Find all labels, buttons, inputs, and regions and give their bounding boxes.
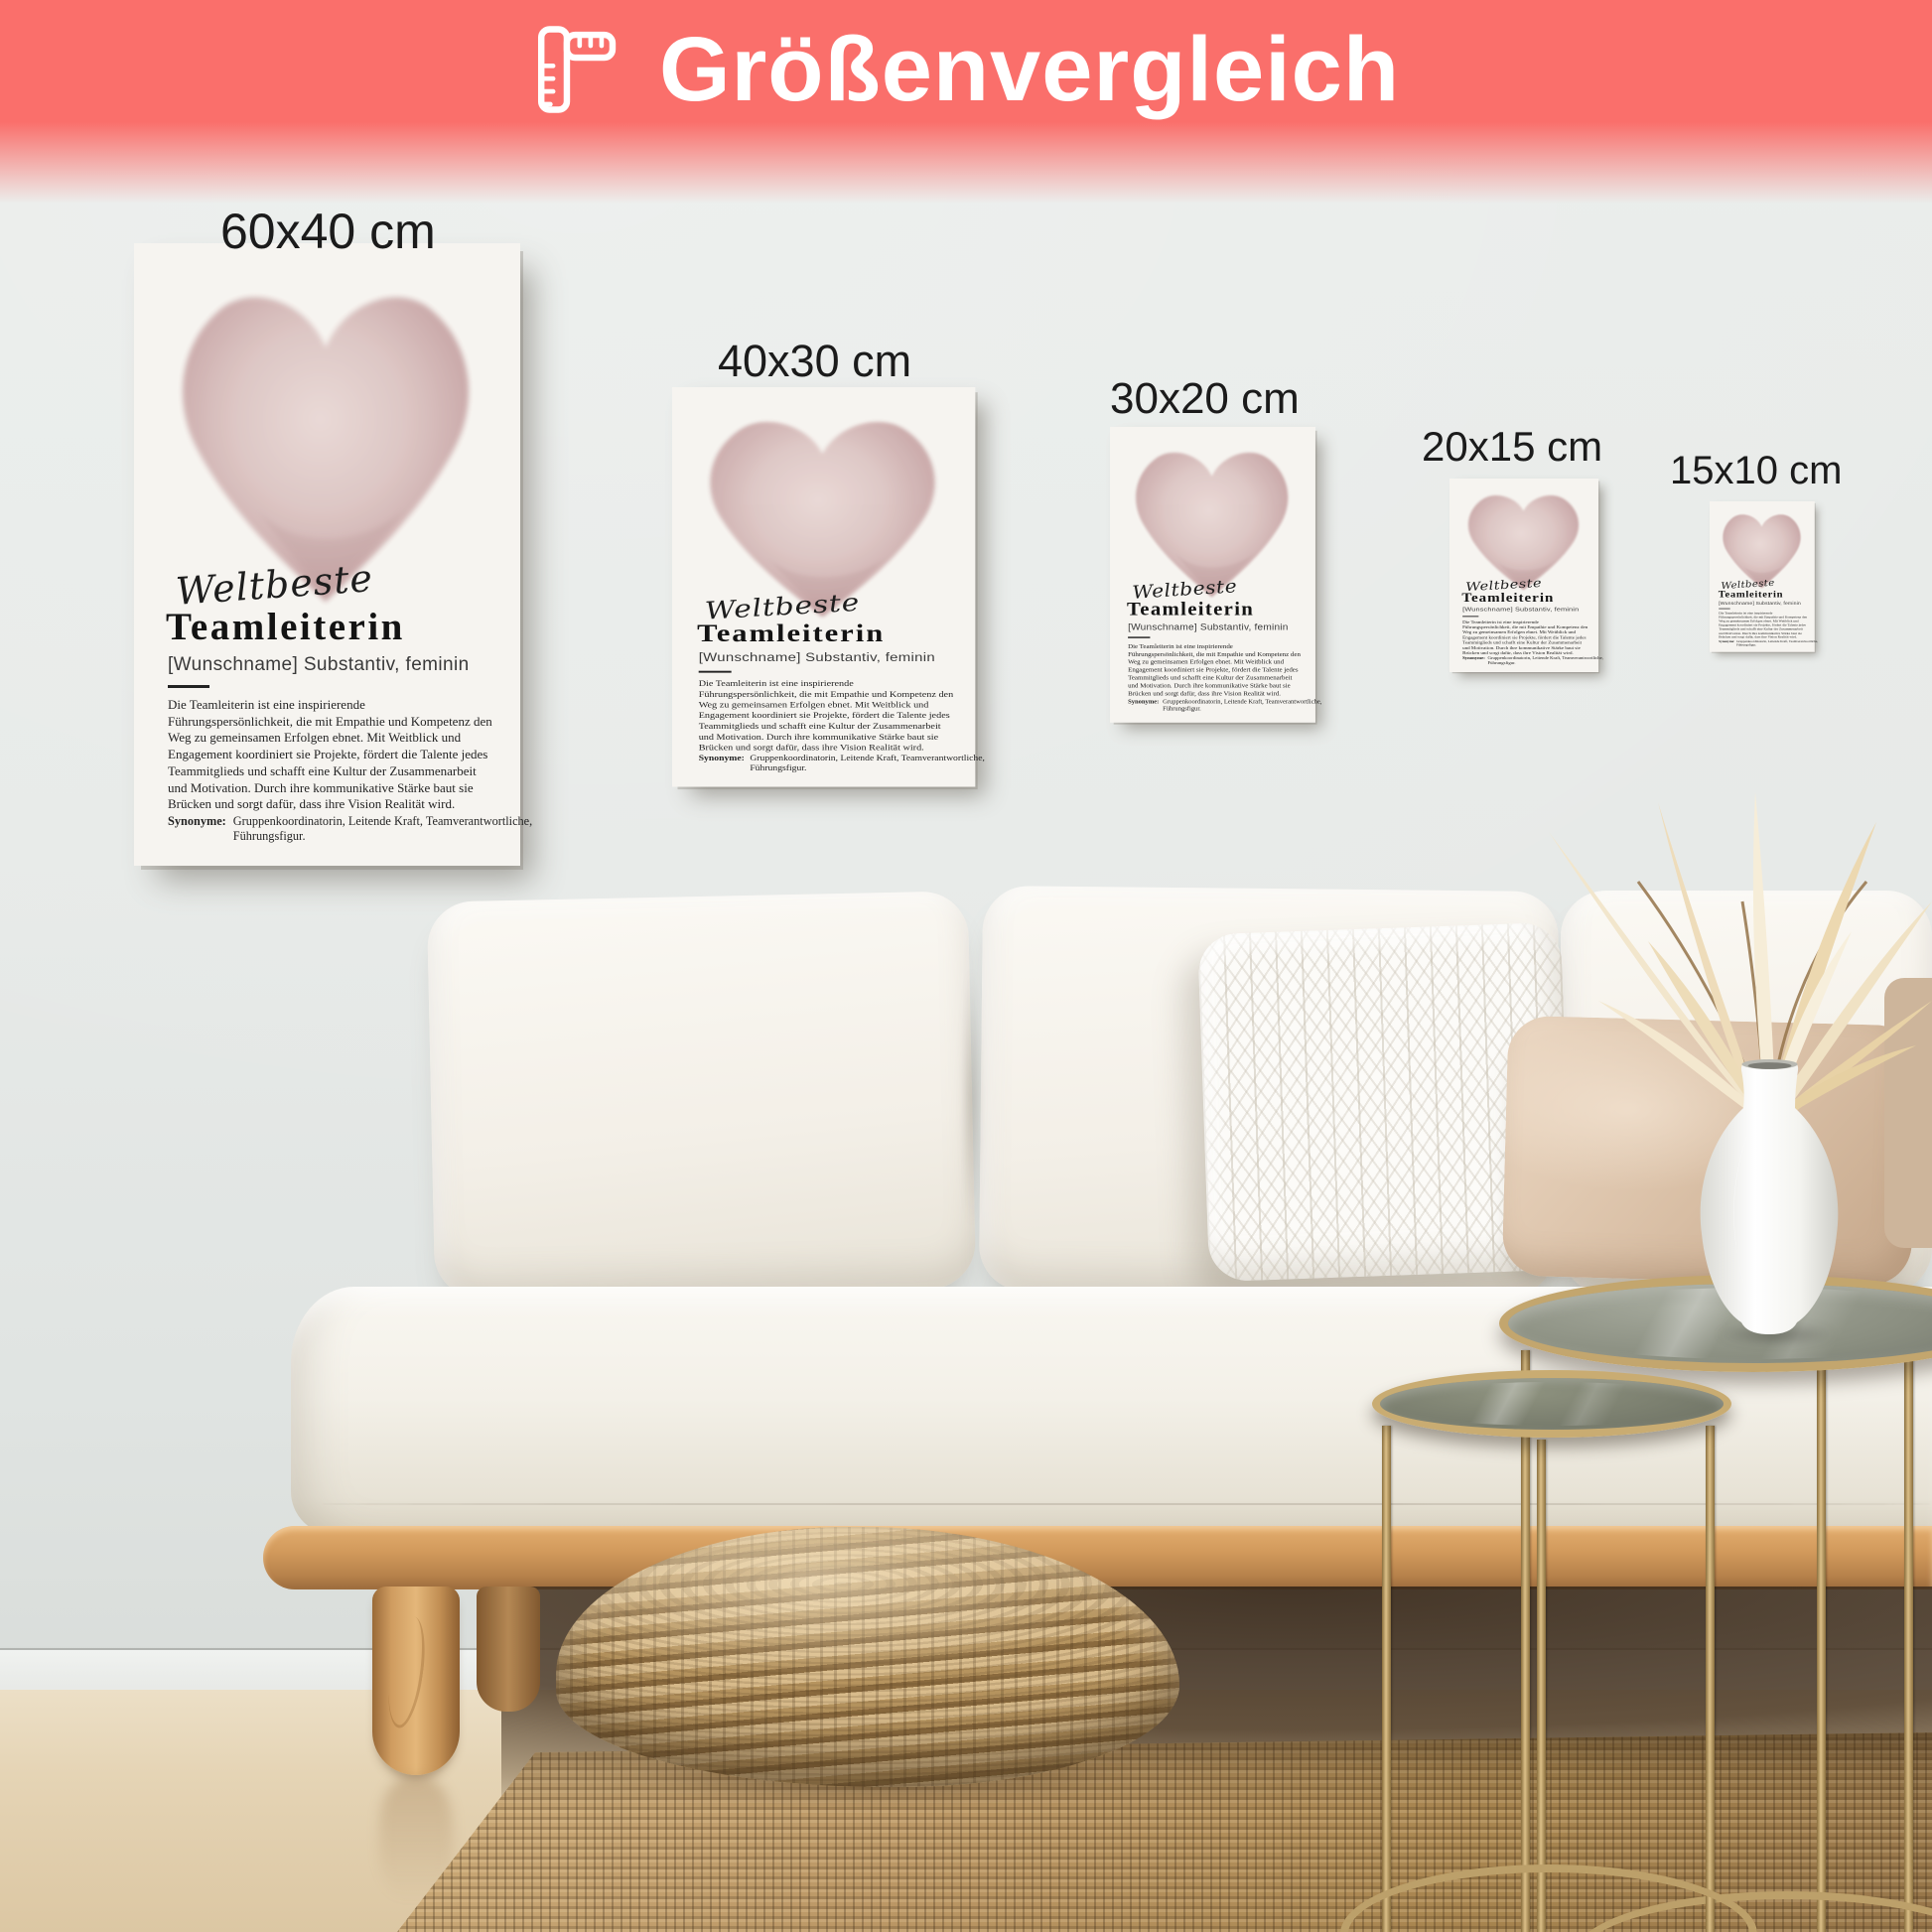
big-table-leg [1817,1358,1826,1932]
synonyms-text: Gruppenkoordinatorin, Leitende Kraft, Te… [750,754,985,772]
small-table-leg [1537,1440,1546,1932]
big-table-leg [1904,1340,1913,1932]
poster-definition-text: Die Teamleiterin ist eine inspirierende … [168,697,492,813]
poster-synonyms: Synonyme: Gruppenkoordinatorin, Leitende… [168,814,532,844]
sofa-back-cushion-left [427,891,976,1299]
poster: Weltbeste Teamleiterin [Wunschname] Subs… [1449,479,1598,672]
poster-definition-text: Die Teamleiterin ist eine inspirierende … [1462,620,1587,655]
size-label-30x20: 30x20 cm [1110,374,1300,424]
poster-title: Teamleiterin [697,621,885,648]
small-table-leg [1382,1426,1391,1932]
poster-synonyms: Synonyme: Gruppenkoordinatorin, Leitende… [1719,639,1818,646]
synonyms-text: Gruppenkoordinatorin, Leitende Kraft, Te… [1736,639,1818,646]
poster-subtitle: [Wunschname] Substantiv, feminin [168,654,470,676]
poster-title: Teamleiterin [166,607,405,649]
cushion-gap-shadow [959,923,985,1271]
poster-subtitle: [Wunschname] Substantiv, feminin [1462,607,1579,614]
page-title: Größenvergleich [659,24,1400,115]
size-label-60x40: 60x40 cm [220,203,436,260]
size-comparison-mockup: Größenvergleich Weltbeste Teamleiterin [… [0,0,1932,1932]
poster-divider [1128,636,1150,637]
poster-divider [1462,616,1478,617]
poster-synonyms: Synonyme: Gruppenkoordinatorin, Leitende… [1128,698,1321,712]
size-label-15x10: 15x10 cm [1670,449,1842,493]
poster-subtitle: [Wunschname] Substantiv, feminin [1128,622,1289,632]
poster: Weltbeste Teamleiterin [Wunschname] Subs… [1110,427,1315,723]
synonyms-label: Synonyme: [168,814,226,844]
small-brass-table-top [1372,1370,1731,1438]
poster-divider [168,685,209,688]
size-label-20x15: 20x15 cm [1422,423,1602,471]
ruler-icon [532,22,623,117]
poster-divider [1719,609,1729,610]
synonyms-label: Synonyme: [1462,656,1485,665]
poster-synonyms: Synonyme: Gruppenkoordinatorin, Leitende… [699,754,985,772]
sofa-leg-front [372,1587,460,1775]
poster-divider [699,671,732,673]
poster-subtitle: [Wunschname] Substantiv, feminin [699,651,935,665]
banner-content: Größenvergleich [0,0,1932,139]
sofa-leg-back [477,1587,540,1712]
white-vase [1680,1050,1859,1344]
poster: Weltbeste Teamleiterin [Wunschname] Subs… [134,243,520,866]
small-table-leg [1706,1426,1715,1932]
synonyms-text: Gruppenkoordinatorin, Leitende Kraft, Te… [1163,698,1321,712]
synonyms-label: Synonyme: [1128,698,1159,712]
poster-definition-text: Die Teamleiterin ist eine inspirierende … [699,678,953,753]
synonyms-text: Gruppenkoordinatorin, Leitende Kraft, Te… [233,814,532,844]
big-table-leg [1521,1350,1530,1932]
poster: Weltbeste Teamleiterin [Wunschname] Subs… [1710,501,1815,652]
poster: Weltbeste Teamleiterin [Wunschname] Subs… [672,387,975,787]
synonyms-text: Gruppenkoordinatorin, Leitende Kraft, Te… [1488,656,1603,665]
poster-title: Teamleiterin [1461,592,1554,605]
synonyms-label: Synonyme: [1719,639,1734,646]
poster-definition-text: Die Teamleiterin ist eine inspirierende … [1128,642,1301,698]
poster-subtitle: [Wunschname] Substantiv, feminin [1719,601,1801,606]
poster-synonyms: Synonyme: Gruppenkoordinatorin, Leitende… [1462,656,1603,665]
synonyms-label: Synonyme: [699,754,745,772]
header-banner: Größenvergleich [0,0,1932,204]
poster-title: Teamleiterin [1719,590,1784,600]
size-label-40x30: 40x30 cm [718,336,911,387]
poster-definition-text: Die Teamleiterin ist eine inspirierende … [1719,612,1807,639]
poster-title: Teamleiterin [1127,600,1254,620]
